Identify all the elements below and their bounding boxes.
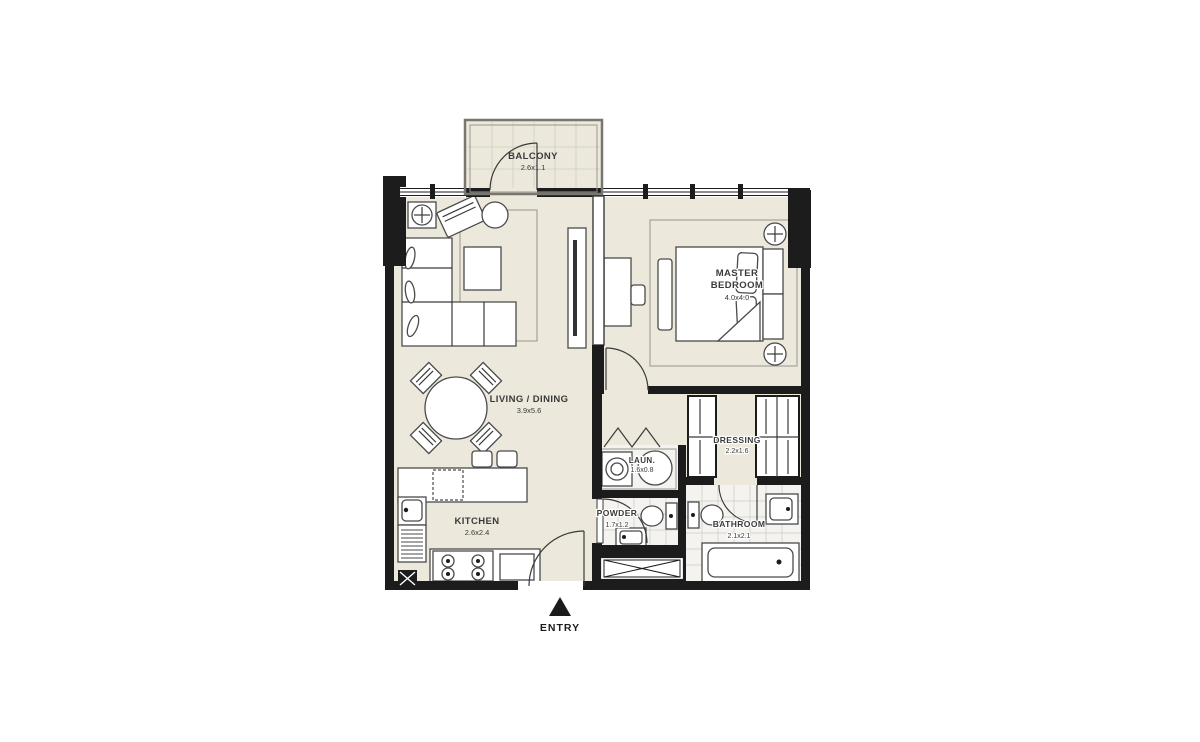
desk [604, 258, 631, 326]
column-top-right [788, 190, 811, 268]
faucet-icon [786, 507, 790, 511]
service-shaft [600, 557, 684, 580]
floor-plan-drawing: ENTRY BALCONY 2.6x1.1 LIVING / DINING 3.… [0, 0, 1200, 742]
desk-chair [631, 285, 645, 305]
entry-arrow-icon [549, 597, 571, 616]
dining-table [425, 377, 487, 439]
headboard [763, 294, 783, 339]
kitchen-stool [472, 451, 492, 467]
coffee-table [464, 247, 501, 290]
dressing-dims: 2.2x1.6 [726, 448, 749, 455]
wall-bedroom-south [648, 386, 802, 394]
window-mullion [690, 184, 695, 199]
master-bedroom-label-line2: BEDROOM [711, 280, 763, 291]
window-mullion [738, 184, 743, 199]
entry-label: ENTRY [540, 622, 580, 634]
headboard [763, 249, 783, 294]
powder-label: POWDER [597, 508, 638, 518]
partition-living-bedroom [593, 196, 604, 345]
kitchen-stool [497, 451, 517, 467]
window-bedroom [602, 184, 788, 199]
kitchen-dims: 2.6x2.4 [465, 528, 490, 537]
drain-icon [777, 560, 782, 565]
wall-dressing-bathroom-right [757, 477, 802, 485]
counter-appliance [500, 554, 534, 580]
faucet-icon [404, 508, 408, 512]
bathroom-label: BATHROOM [713, 519, 766, 529]
fridge [398, 525, 426, 562]
bed-bench [658, 259, 672, 330]
balcony-dims: 2.6x1.1 [521, 163, 546, 172]
island-sink [433, 470, 463, 500]
corner-shaft [398, 570, 417, 587]
wall-laundry-powder [592, 490, 686, 498]
floor-plan-page: ENTRY BALCONY 2.6x1.1 LIVING / DINING 3.… [0, 0, 1200, 742]
window-living [400, 184, 466, 199]
laundry-label: LAUN. [629, 456, 655, 465]
tv-screen [573, 240, 577, 336]
master-bedroom-label-line1: MASTER [716, 268, 759, 279]
entry-opening [518, 581, 583, 590]
wall-dressing-bathroom-left [686, 477, 714, 485]
round-side-table [482, 202, 508, 228]
dressing-label: DRESSING [713, 435, 761, 445]
powder-dims: 1.7x1.2 [606, 522, 629, 529]
wall-powder-shaft [592, 545, 686, 557]
wall-hall-upper [592, 386, 602, 499]
window-mullion [643, 184, 648, 199]
washer-drum-icon [611, 463, 623, 475]
kitchen-label: KITCHEN [454, 516, 499, 527]
master-bedroom-dims: 4.0x4.0 [725, 293, 750, 302]
living-dining-label: LIVING / DINING [490, 394, 569, 405]
living-dining-dims: 3.9x5.6 [517, 406, 542, 415]
balcony-label: BALCONY [508, 151, 558, 162]
entry-marker: ENTRY [540, 597, 580, 634]
faucet-icon [622, 535, 626, 539]
laundry-dims: 1.6x0.8 [631, 467, 654, 474]
window-mullion [430, 184, 435, 199]
toilet-bowl [641, 506, 663, 526]
bathroom-dims: 2.1x2.1 [728, 533, 751, 540]
